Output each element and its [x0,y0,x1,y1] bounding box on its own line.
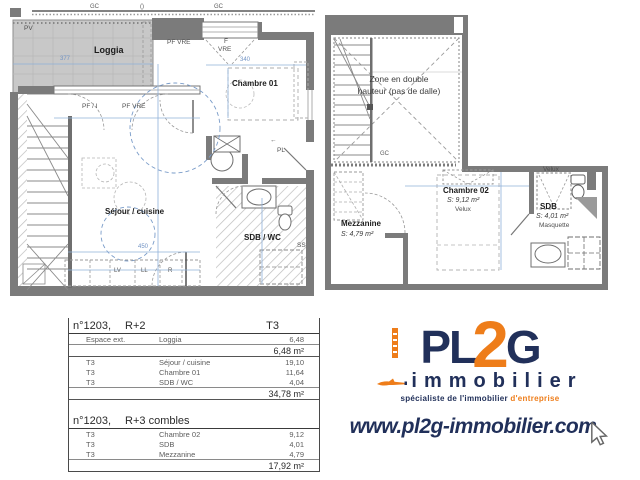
vent-symbol: () [140,4,144,11]
plane-icon [377,378,407,388]
area-table: n°1203, R+2 T3 Espace ext. Loggia 6,48 6… [68,318,320,472]
f-label: F [224,38,228,45]
pl2g-logo: PL 2 G immobilier spécialiste de l'immob… [352,312,608,403]
zone-double-hauteur-label: Zone en double hauteur (pas de dalle) [355,73,443,98]
table-row: T3 SDB 4,01 [69,439,319,449]
logo-tagline: spécialiste de l'immobilier d'entreprise [352,394,608,403]
sdb-area: S: 4,01 m² [536,213,568,221]
pf-i-label: PF / I [82,103,98,110]
chambre02-label: Chambre 02 [443,187,489,196]
sdb-wc-label: SDB / WC [244,234,281,243]
logo-digit-2: 2 [472,316,509,372]
table-header-r3: n°1203, R+3 combles [69,413,319,429]
website-link-row: www.pl2g-immobilier.com [338,408,622,446]
mezzanine-area: S: 4,79 m² [341,231,373,239]
plan-r2-graphics [10,8,317,302]
entry-arrow: ← [270,137,277,144]
lv-label: LV [114,268,121,275]
unit-number: n°1203, [73,415,111,427]
ll-label: LL [141,268,148,275]
sdb-label: SDB [540,203,557,212]
gc-label: GC [380,151,389,158]
pl-label: PL [277,147,285,154]
logo-letters-pl: PL [420,320,475,374]
gc-label-right: GC [214,4,223,11]
ladder-icon [392,328,398,358]
subtotal-r3: 17,92 m² [69,459,319,472]
pv-label: PV [24,25,33,32]
table-row: T3 SDB / WC 4,04 [69,377,319,387]
table-row: T3 Séjour / cuisine 19,10 [69,357,319,367]
plan-r3: Zone en double hauteur (pas de dalle) GC… [325,15,608,290]
mezzanine-label: Mezzanine [341,220,381,229]
pf-vre-top-label: PF VRE [167,39,190,46]
floor-plan-sheet: GC () GC PV Loggia 377 PF VRE F VRE 340 … [0,0,640,480]
table-row: T3 Chambre 02 9,12 [69,429,319,439]
website-link[interactable]: www.pl2g-immobilier.com [350,415,597,439]
pf-vre-mid-label: PF VRE [122,103,145,110]
table-gap [69,400,319,413]
dim-377: 377 [60,56,70,63]
logo-letter-g: G [506,320,540,374]
level-label: R+2 [125,320,146,332]
velux-chambre-label: Velux [455,206,471,213]
gc-label-left: GC [90,4,99,11]
plan-r3-graphics [325,15,608,290]
vre-label: VRE [218,46,231,53]
table-row: T3 Chambre 01 11,64 [69,367,319,377]
tagline-accent: d'entreprise [510,394,559,403]
table-header-r2: n°1203, R+2 T3 [69,318,319,334]
mouse-cursor-icon [590,422,610,446]
velux-sdb-label: Velux [543,166,559,173]
subtotal-r2: 34,78 m² [69,387,319,400]
subtotal-ext: 6,48 m² [69,344,319,357]
table-row: T3 Mezzanine 4,79 [69,449,319,459]
table-row: Espace ext. Loggia 6,48 [69,334,319,344]
type-label: T3 [266,320,319,332]
chambre02-area: S: 9,12 m² [447,197,479,205]
logo-wordmark: PL 2 G [352,312,608,374]
dim-340: 340 [240,57,250,64]
chambre01-label: Chambre 01 [232,80,278,89]
r-label: R [168,268,172,275]
dim-450: 450 [138,244,148,251]
ss-label: SS [297,242,306,249]
sejour-label: Séjour / cuisine [105,208,164,217]
loggia-label: Loggia [94,46,124,56]
level-label: R+3 combles [125,415,190,427]
plan-r2: GC () GC PV Loggia 377 PF VRE F VRE 340 … [10,8,317,302]
masquette-label: Masquette [539,222,569,229]
unit-number: n°1203, [73,320,111,332]
